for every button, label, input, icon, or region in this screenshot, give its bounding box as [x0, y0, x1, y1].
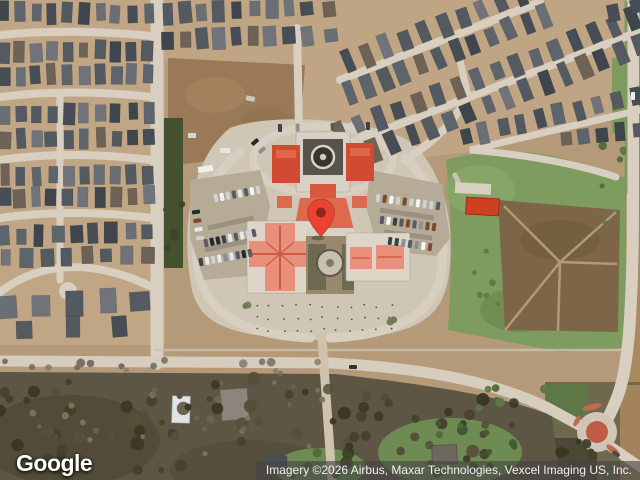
location-pin-marker[interactable]	[304, 193, 338, 243]
pin-icon	[308, 199, 335, 237]
pin-dot	[316, 208, 326, 218]
google-logo[interactable]: Google	[16, 450, 92, 477]
pin-shadow	[312, 236, 325, 241]
attribution-bar: Imagery ©2026 Airbus, Maxar Technologies…	[256, 461, 640, 480]
attribution-text: Imagery ©2026 Airbus, Maxar Technologies…	[266, 463, 632, 477]
map-viewport[interactable]: Google Imagery ©2026 Airbus, Maxar Techn…	[0, 0, 640, 480]
